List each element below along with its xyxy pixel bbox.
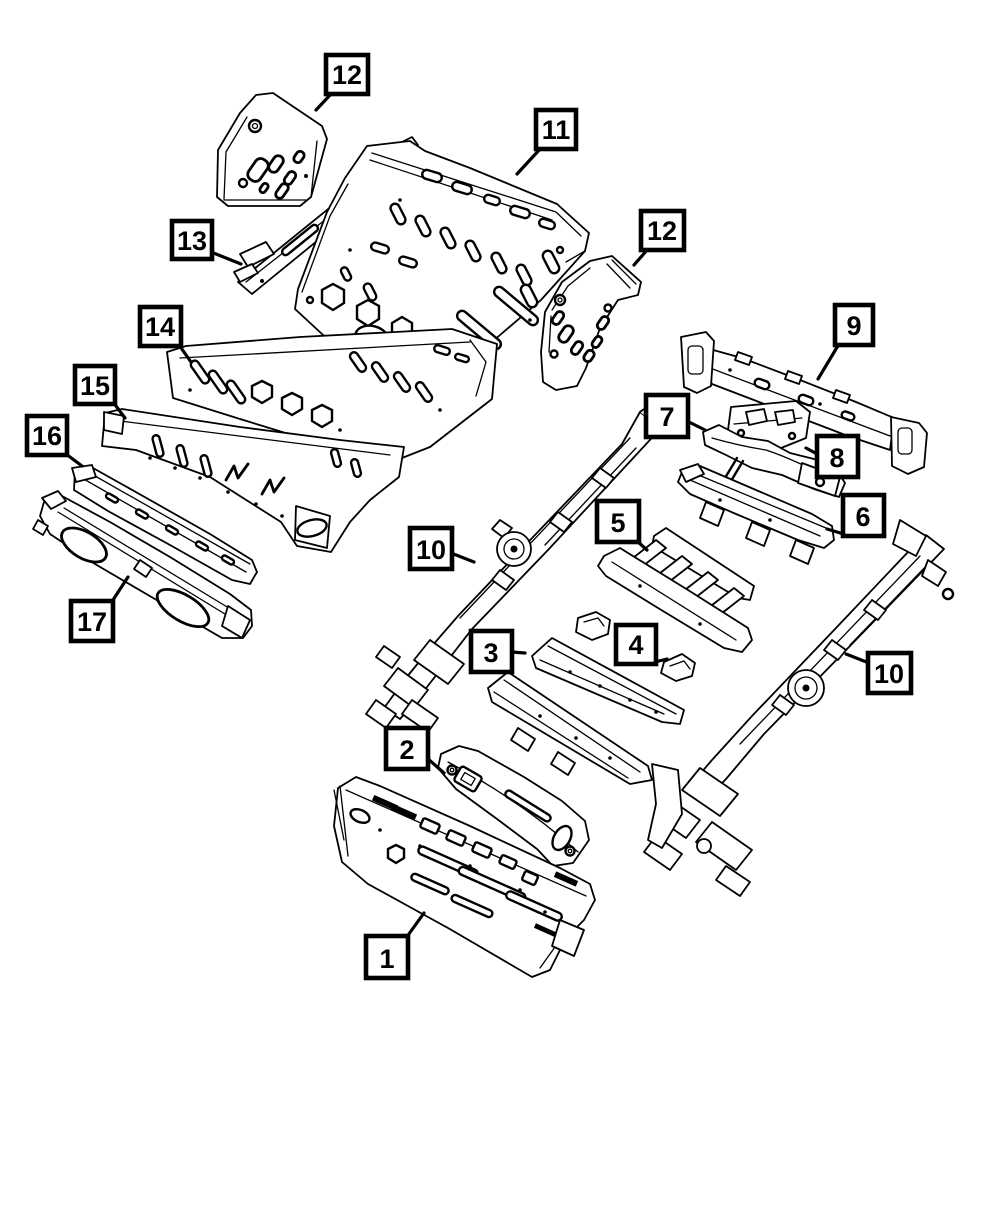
callout-11-label: 11 — [542, 115, 571, 145]
part-drawing-10-right — [644, 520, 953, 896]
callout-15[interactable]: 15 — [75, 366, 115, 404]
callout-2[interactable]: 2 — [386, 728, 428, 769]
callout-11[interactable]: 11 — [536, 110, 576, 149]
callout-6-label: 6 — [855, 502, 870, 532]
callout-14[interactable]: 14 — [140, 307, 181, 346]
callout-5[interactable]: 5 — [597, 501, 639, 542]
callout-17[interactable]: 17 — [71, 601, 113, 641]
callout-4[interactable]: 4 — [616, 625, 656, 664]
parts-diagram-canvas: 12 11 13 12 14 9 15 7 16 8 5 6 — [0, 0, 1000, 1214]
callout-6[interactable]: 6 — [843, 495, 884, 536]
callout-12-right[interactable]: 12 — [641, 211, 684, 250]
callout-13[interactable]: 13 — [172, 221, 212, 259]
callout-14-label: 14 — [145, 312, 175, 342]
callout-8-label: 8 — [829, 443, 844, 473]
callout-3[interactable]: 3 — [471, 631, 512, 672]
callout-12-left-label: 12 — [332, 60, 362, 90]
callout-9-label: 9 — [846, 311, 861, 341]
callout-16-label: 16 — [32, 421, 62, 451]
part-drawing-9 — [681, 332, 927, 474]
callout-10-left[interactable]: 10 — [410, 528, 452, 569]
callout-2-label: 2 — [399, 735, 414, 765]
callout-3-label: 3 — [483, 638, 498, 668]
exploded-parts-diagram: 12 11 13 12 14 9 15 7 16 8 5 6 — [0, 0, 1000, 1214]
callout-12-left[interactable]: 12 — [326, 55, 368, 94]
callout-7[interactable]: 7 — [646, 395, 688, 437]
callout-4-label: 4 — [628, 630, 643, 660]
callout-16[interactable]: 16 — [27, 416, 67, 455]
callout-15-label: 15 — [80, 371, 110, 401]
callout-17-label: 17 — [77, 607, 107, 637]
callout-7-label: 7 — [659, 402, 674, 432]
part-drawing-12-left — [217, 93, 327, 206]
callout-10-right-label: 10 — [874, 659, 904, 689]
callout-9[interactable]: 9 — [835, 305, 873, 345]
callout-8[interactable]: 8 — [817, 436, 858, 477]
callout-12-right-label: 12 — [647, 216, 677, 246]
callout-1[interactable]: 1 — [366, 936, 408, 978]
callout-10-left-label: 10 — [416, 535, 446, 565]
callout-13-label: 13 — [177, 226, 207, 256]
callout-1-label: 1 — [379, 944, 394, 974]
callout-10-right[interactable]: 10 — [868, 653, 911, 693]
callout-5-label: 5 — [610, 508, 625, 538]
